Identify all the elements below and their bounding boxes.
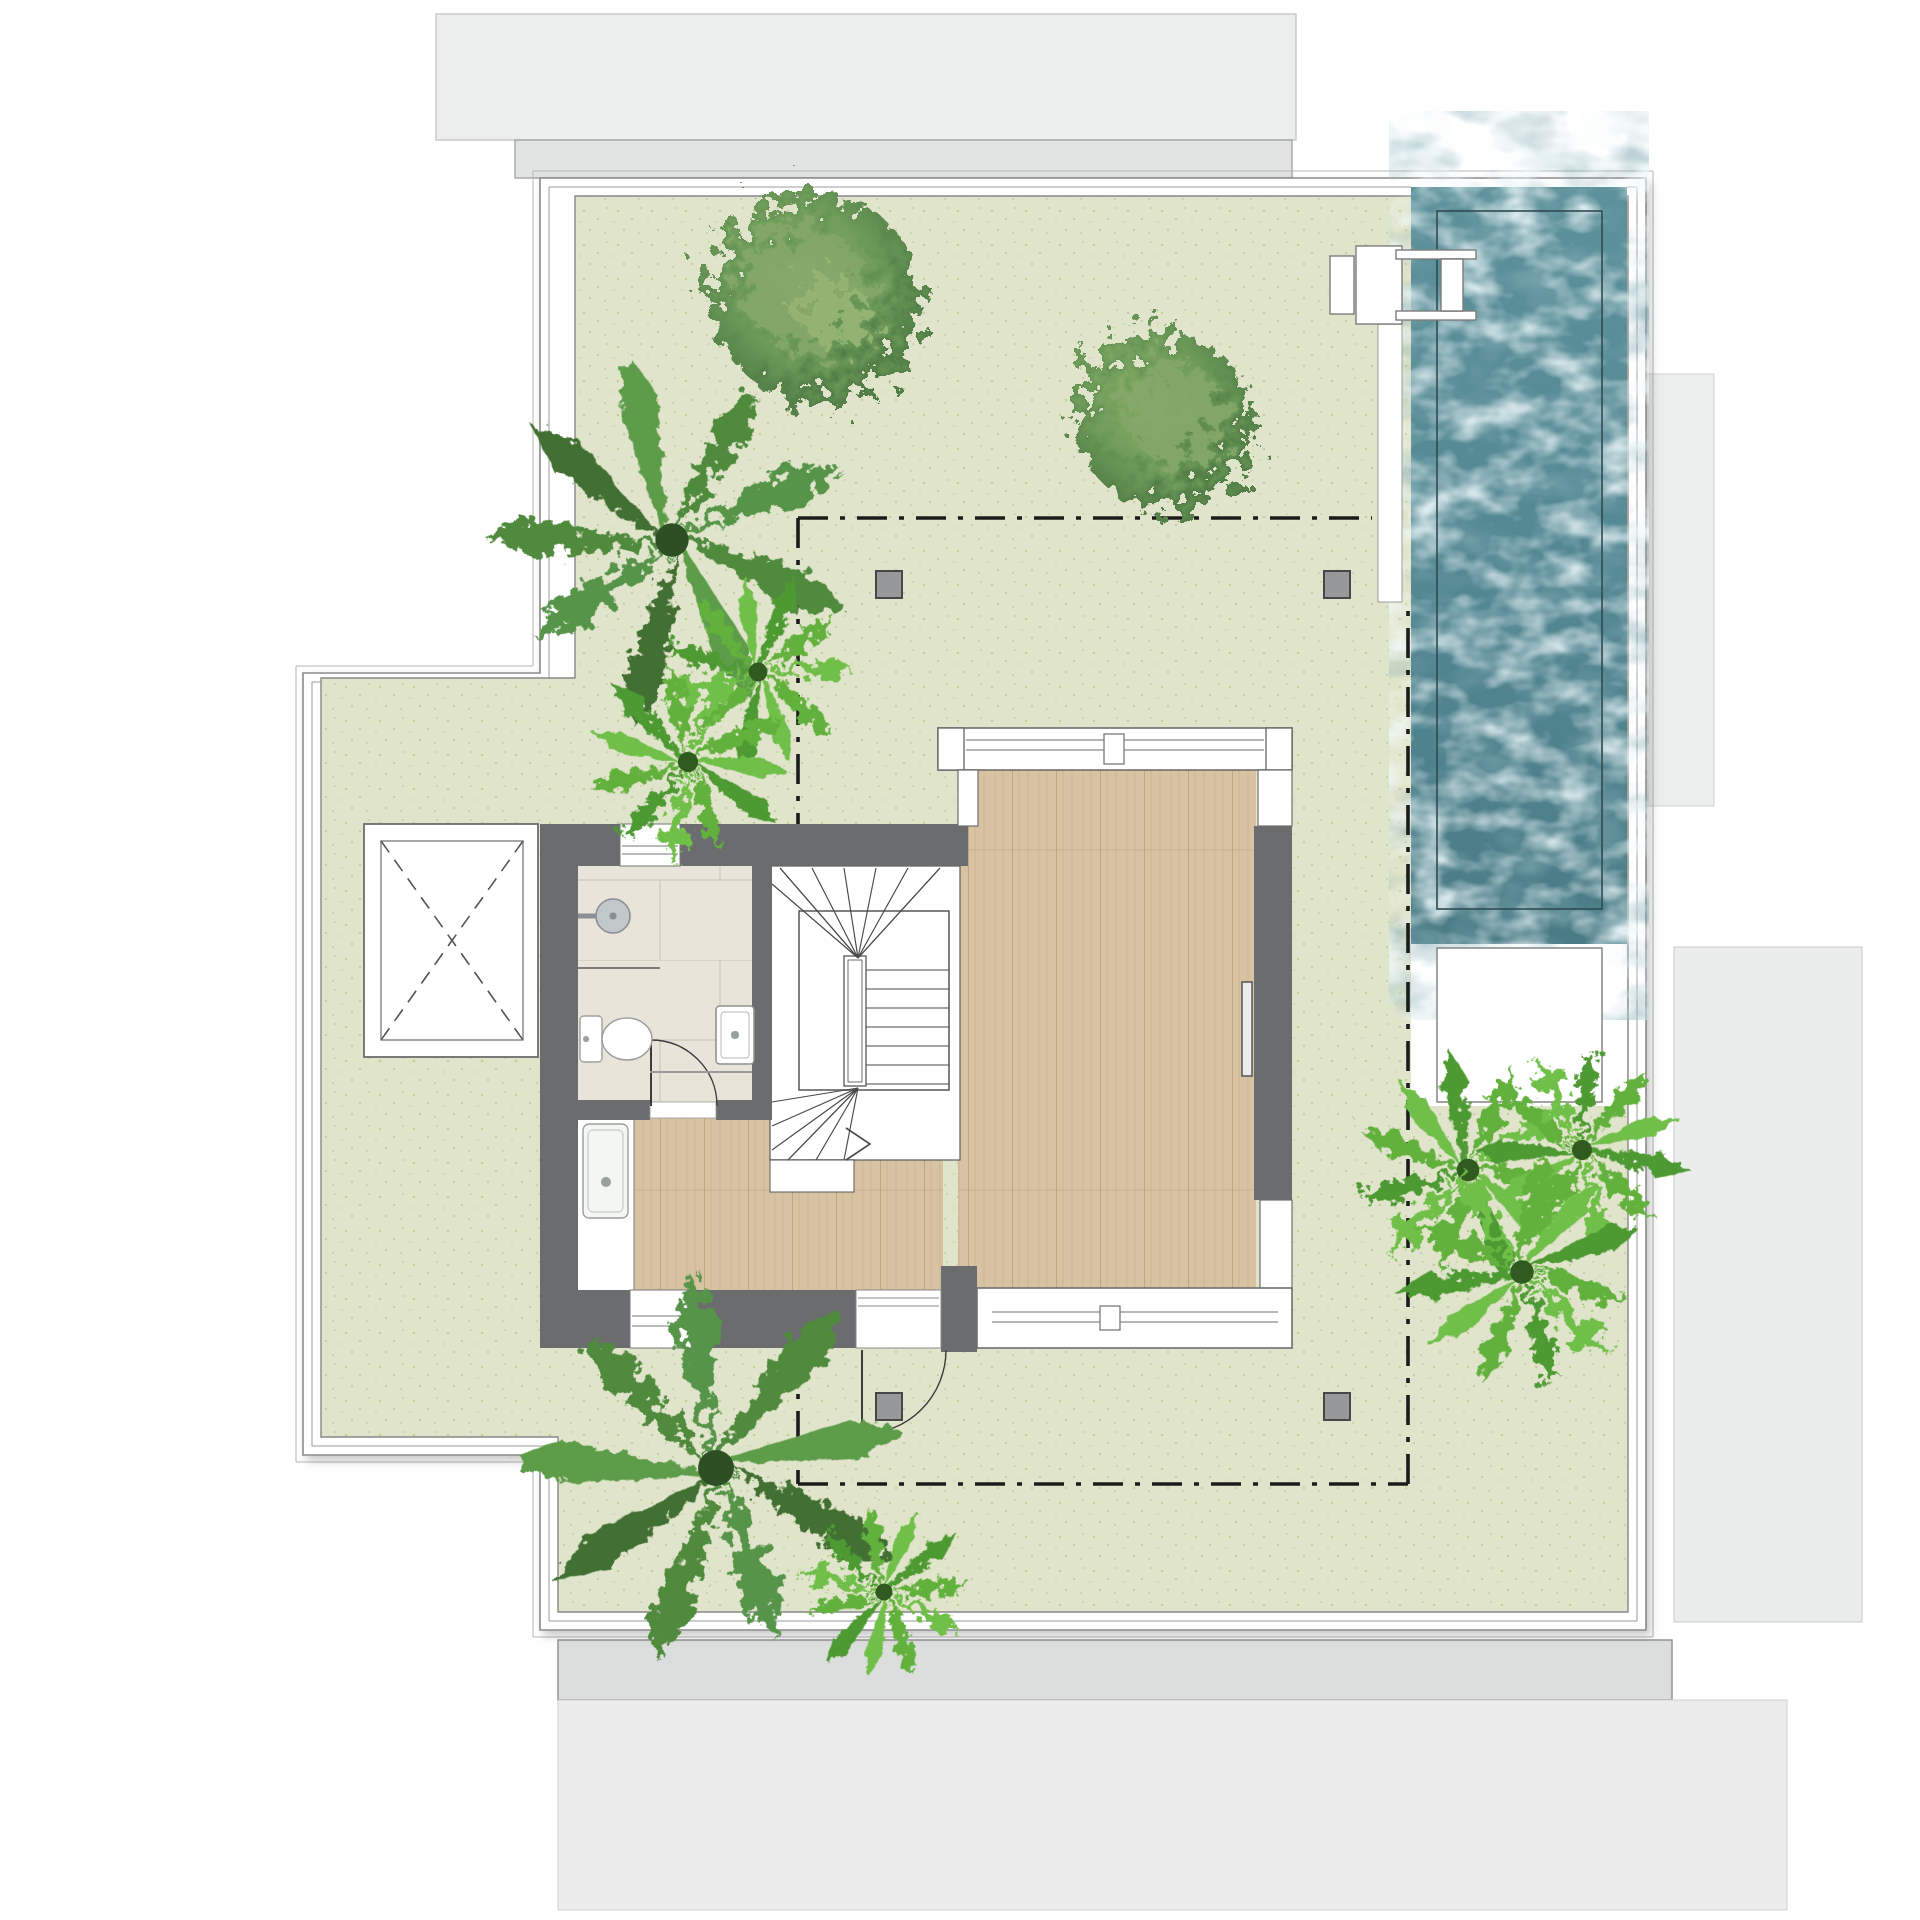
counter-basin: [583, 1124, 628, 1218]
penthouse-volume: [540, 728, 1292, 1434]
ladder-platform-small: [1330, 256, 1354, 314]
window-corner-southeast: [1260, 1200, 1292, 1290]
window-mullion-north: [1104, 734, 1124, 764]
neighbor-roof-bottom-band: [558, 1640, 1672, 1700]
neighbor-roof-bottom-slab: [558, 1700, 1787, 1910]
sliding-door-handle: [1242, 982, 1252, 1076]
wall-east: [1254, 826, 1292, 1200]
elevator-shaft: [364, 824, 538, 1057]
window-mullion-south: [1100, 1306, 1120, 1330]
wall-north-right: [680, 824, 968, 866]
neighbor-roof-right-upper: [1638, 374, 1714, 806]
wall-west: [540, 824, 578, 1348]
counter-basin-drain: [601, 1177, 611, 1187]
floor-plan-page: Roof terrace floor plan: speckled green …: [0, 0, 1920, 1920]
wall-south-left: [540, 1290, 630, 1348]
bush-tree-small: [1076, 332, 1252, 508]
living-room-wood-floor: [958, 760, 1256, 1292]
bush-tree-large: [712, 194, 920, 402]
wall-north-left: [540, 824, 620, 866]
pool-side-board: [1378, 324, 1402, 602]
pergola-column-bottom-left: [876, 1393, 902, 1420]
pergola-column-top-right: [1324, 571, 1350, 598]
bathroom-basin: [716, 1006, 754, 1064]
wall-bathroom-south-right: [716, 1100, 772, 1120]
window-return-northeast: [1258, 770, 1292, 826]
ladder-rail-top: [1396, 250, 1476, 259]
hallway-counter: [576, 1112, 634, 1292]
pergola-column-top-left: [876, 571, 902, 598]
floor-plan-svg: Roof terrace floor plan: speckled green …: [0, 0, 1920, 1920]
wall-bathroom-south-left: [578, 1100, 650, 1120]
stairwell-lower-step: [770, 1160, 854, 1192]
neighbor-roof-right-lower: [1674, 947, 1862, 1622]
window-return-west: [958, 770, 978, 826]
neighbor-roof-top-parapet: [515, 140, 1292, 178]
wall-entrance-pillar: [941, 1266, 977, 1352]
wall-bathroom-east: [752, 866, 772, 1108]
ladder-platform-large: [1356, 246, 1402, 324]
pergola-column-bottom-right: [1324, 1393, 1350, 1420]
toilet: [580, 1016, 652, 1062]
neighbor-roof-top: [436, 14, 1296, 140]
ladder-rail-bottom: [1396, 311, 1476, 320]
swimming-pool: [1411, 185, 1627, 1106]
ladder-step: [1441, 259, 1463, 311]
window-band-south: [977, 1288, 1292, 1348]
